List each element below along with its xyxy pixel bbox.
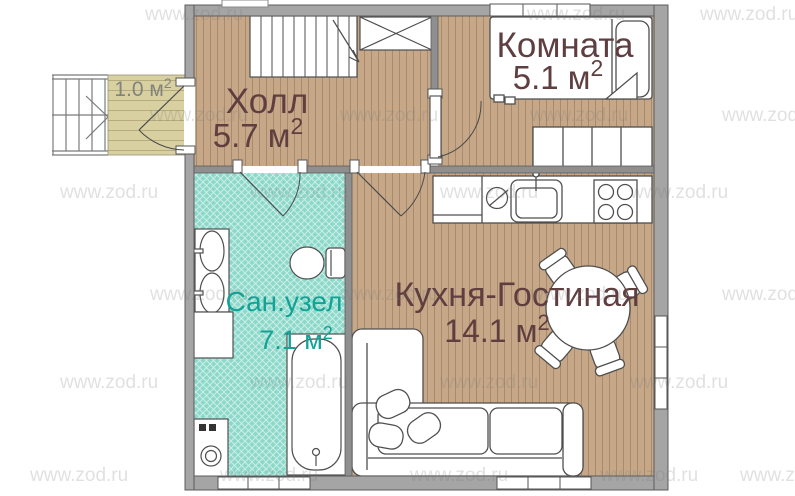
window-right	[655, 316, 667, 409]
watermark: www.zod.ru	[59, 372, 158, 393]
sofa-armrest	[563, 403, 583, 476]
entrance-stairs	[52, 75, 108, 155]
closet-crossed	[360, 17, 432, 50]
watermark: www.zod.ru	[721, 105, 795, 126]
watermark: www.zod.ru	[629, 182, 728, 203]
toilet	[290, 247, 345, 279]
wall-right	[654, 5, 668, 490]
watermark: www.zod.ru	[599, 465, 698, 486]
watermark: www.zod.ru	[529, 284, 628, 305]
watermark: www.zod.ru	[339, 284, 438, 305]
watermark: www.zod.ru	[149, 284, 248, 305]
window-bottom-right	[497, 477, 591, 489]
door-jamb	[298, 160, 307, 173]
watermark: www.zod.ru	[439, 372, 538, 393]
wardrobe	[533, 127, 652, 167]
floor-plan-page: Холл 5.7 м2 Комната 5.1 м2 Кухня-Гостина…	[0, 0, 795, 496]
watermark: www.zod.ru	[721, 284, 795, 305]
watermark: www.zod.ru	[526, 4, 625, 25]
toilet-tank	[326, 248, 345, 278]
watermark: www.zod.ru	[439, 182, 538, 203]
bedroom-area: 5.1 м2	[513, 55, 604, 96]
staircase	[250, 16, 359, 77]
watermark: www.zod.ru	[29, 465, 128, 486]
watermark: www.zod.ru	[409, 465, 508, 486]
watermark: www.zod.ru	[339, 105, 438, 126]
wall-bathroom-kitchen	[345, 173, 352, 476]
watermark: www.zod.ru	[219, 465, 318, 486]
watermark: www.zod.ru	[149, 105, 248, 126]
door-jamb	[176, 78, 195, 86]
bathroom-cabinet	[194, 312, 233, 358]
watermark: www.zod.ru	[529, 105, 628, 126]
watermark: www.zod.ru	[739, 465, 795, 486]
sofa-cushion	[490, 408, 562, 454]
watermark: www.zod.ru	[249, 372, 348, 393]
watermark: www.zod.ru	[629, 372, 728, 393]
porch-area: 1.0 м2	[114, 75, 171, 101]
slipper	[494, 95, 504, 102]
watermark: www.zod.ru	[249, 182, 348, 203]
wall-hall-bedroom	[431, 16, 438, 96]
door-jamb	[350, 160, 359, 173]
watermark: www.zod.ru	[699, 4, 795, 25]
bathtub	[287, 334, 346, 475]
floor-plan: Холл 5.7 м2 Комната 5.1 м2 Кухня-Гостина…	[0, 0, 795, 496]
watermark: www.zod.ru	[144, 4, 243, 25]
slipper	[505, 97, 515, 104]
watermark: www.zod.ru	[59, 182, 158, 203]
kitchen-living-area: 14.1 м2	[444, 310, 549, 349]
bathroom-area: 7.1 м2	[259, 323, 333, 355]
door-jamb	[233, 160, 242, 173]
